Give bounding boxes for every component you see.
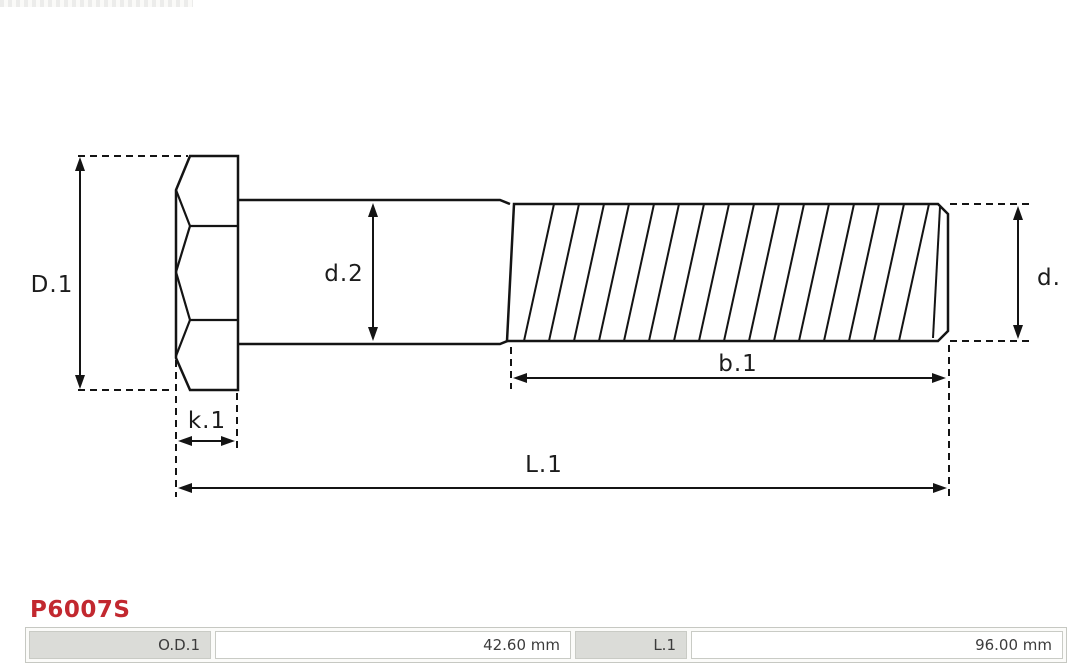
dim-label-thread-length: b.1 [710,350,766,378]
dim-label-head-diameter: D.1 [28,271,76,299]
dim-label-thread-diameter: d. [1028,264,1070,292]
dim-label-shank-diameter: d.2 [318,260,370,288]
bolt-head [176,156,238,390]
spec-table: O.D.1 42.60 mm L.1 96.00 mm [25,627,1067,663]
dim-label-total-length: L.1 [518,451,570,479]
part-number-link[interactable]: P6007S [30,597,130,623]
spec-value-od1: 42.60 mm [215,631,571,659]
spec-name-od1: O.D.1 [29,631,211,659]
spec-value-l1: 96.00 mm [691,631,1063,659]
dim-label-head-thickness: k.1 [182,407,232,435]
catalog-page: { "accent_color": "#c2282f", "line_color… [0,0,1080,668]
bolt-thread-section [507,204,948,341]
spec-name-l1: L.1 [575,631,687,659]
